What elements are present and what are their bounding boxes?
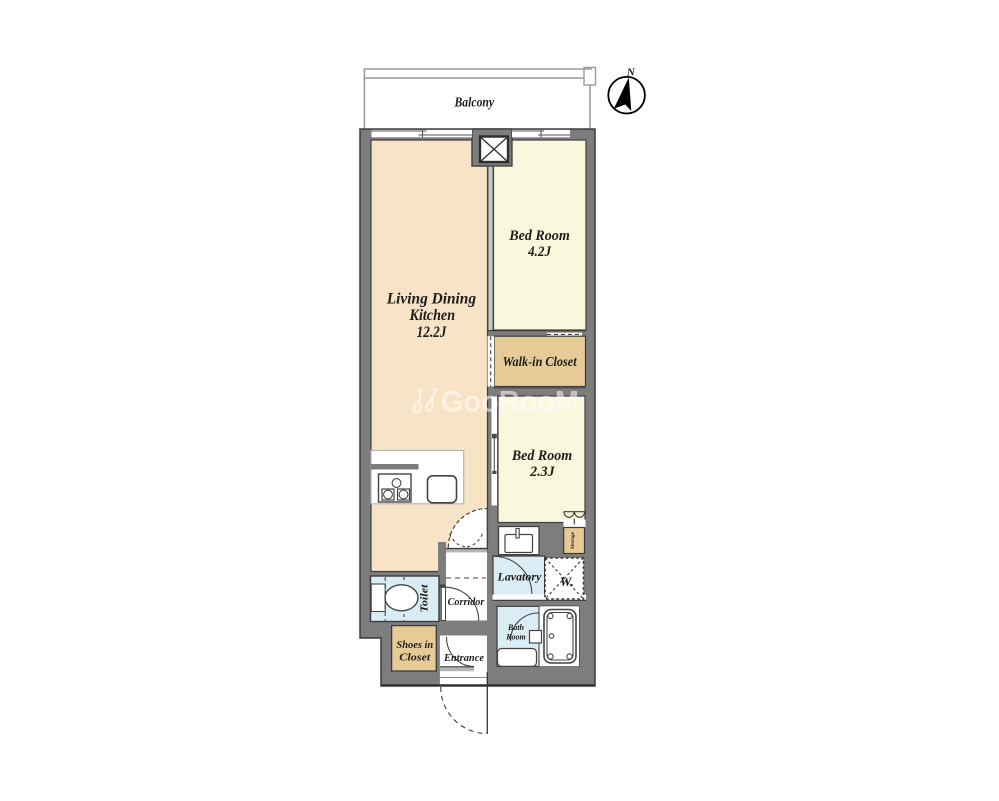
svg-text:Bed Room: Bed Room bbox=[508, 228, 569, 244]
svg-text:N: N bbox=[626, 67, 636, 79]
svg-text:Living Dining: Living Dining bbox=[386, 291, 476, 308]
svg-text:Room: Room bbox=[505, 633, 526, 642]
svg-text:Bed Room: Bed Room bbox=[511, 448, 572, 464]
svg-text:Entrance: Entrance bbox=[443, 652, 484, 664]
svg-text:12.2J: 12.2J bbox=[417, 324, 448, 341]
svg-text:Lavatory: Lavatory bbox=[497, 572, 543, 584]
svg-text:Balcony: Balcony bbox=[454, 95, 495, 110]
svg-text:Corridor: Corridor bbox=[448, 597, 485, 608]
svg-text:4.2J: 4.2J bbox=[527, 244, 551, 260]
svg-text:Walk-in Closet: Walk-in Closet bbox=[503, 354, 578, 369]
svg-text:Closet: Closet bbox=[399, 653, 431, 664]
svg-text:W.: W. bbox=[560, 574, 574, 589]
svg-text:Storage: Storage bbox=[570, 531, 576, 549]
svg-text:Bath: Bath bbox=[507, 623, 525, 632]
svg-text:Shoes in: Shoes in bbox=[396, 640, 433, 651]
svg-text:2.3J: 2.3J bbox=[529, 464, 555, 480]
svg-text:Kitchen: Kitchen bbox=[409, 307, 455, 324]
svg-text:GooRooM: GooRooM bbox=[441, 386, 579, 419]
svg-text:Toilet: Toilet bbox=[420, 583, 431, 612]
